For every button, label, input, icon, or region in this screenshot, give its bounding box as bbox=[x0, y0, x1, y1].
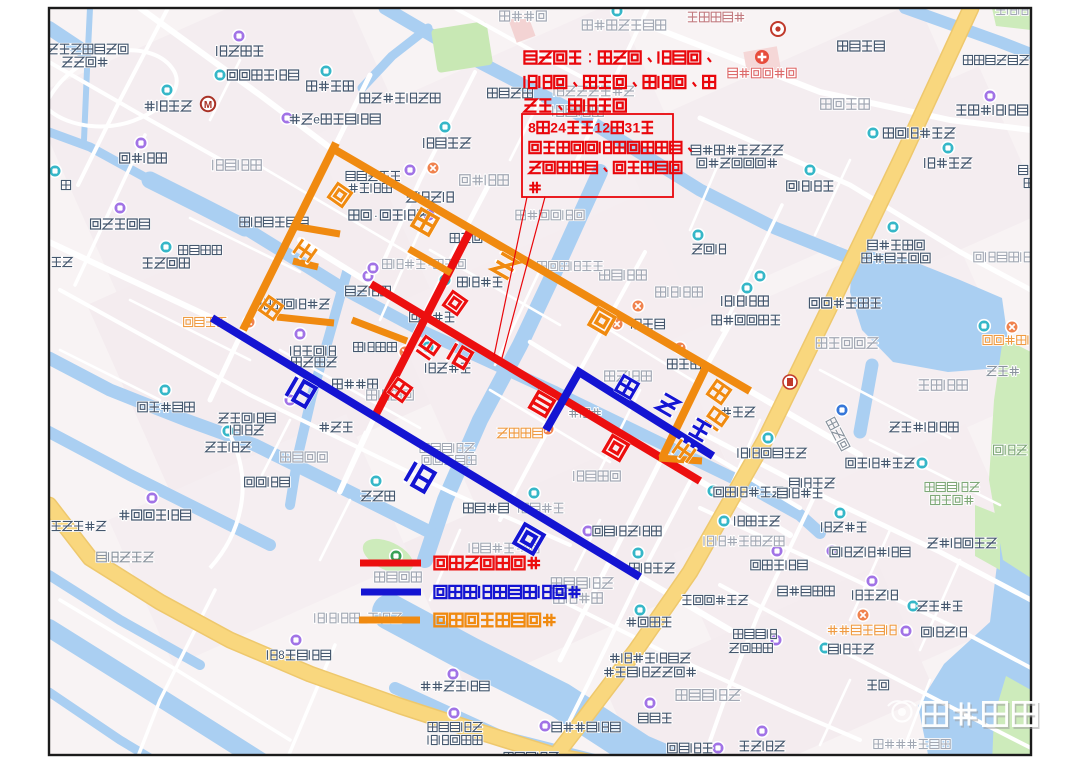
svg-text:·: · bbox=[374, 208, 378, 222]
svg-text:8: 8 bbox=[278, 650, 284, 662]
svg-text:1: 1 bbox=[594, 121, 602, 136]
svg-text:8: 8 bbox=[528, 121, 536, 136]
svg-text:4: 4 bbox=[558, 121, 566, 136]
svg-text:2: 2 bbox=[550, 121, 558, 136]
svg-text:2: 2 bbox=[602, 121, 610, 136]
svg-text:1: 1 bbox=[632, 121, 640, 136]
svg-text:M: M bbox=[204, 100, 212, 111]
svg-text:3: 3 bbox=[624, 121, 632, 136]
svg-text:e: e bbox=[313, 112, 320, 126]
